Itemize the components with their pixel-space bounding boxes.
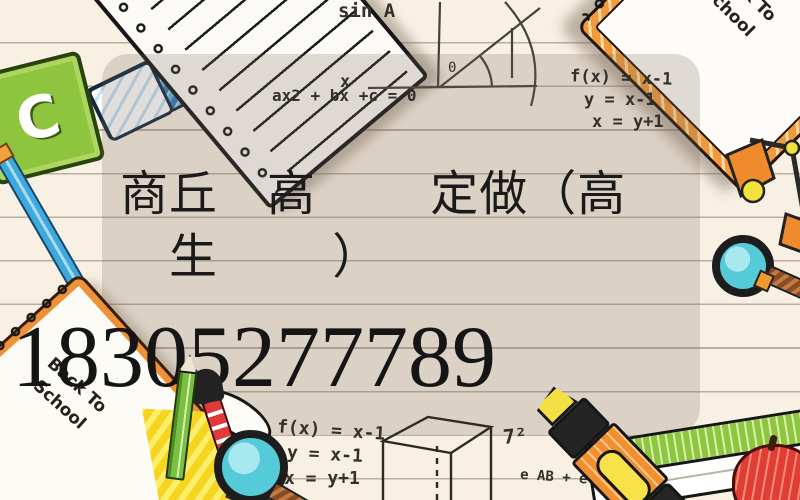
heading-line-1: 商丘 高 定做（高 — [120, 170, 626, 218]
poster-background: sin A 3X2+ Back To School x 0 ax2 + bx +… — [0, 0, 800, 500]
fx-equation-bottom-2: y = x-1 — [287, 442, 364, 467]
fx-equation-bottom-3: x = y+1 — [284, 468, 360, 489]
heading-line-2: 生 ） — [120, 233, 381, 281]
phone-number: 18305277789 — [12, 314, 496, 402]
seven-squared-label: 7² — [502, 423, 528, 449]
